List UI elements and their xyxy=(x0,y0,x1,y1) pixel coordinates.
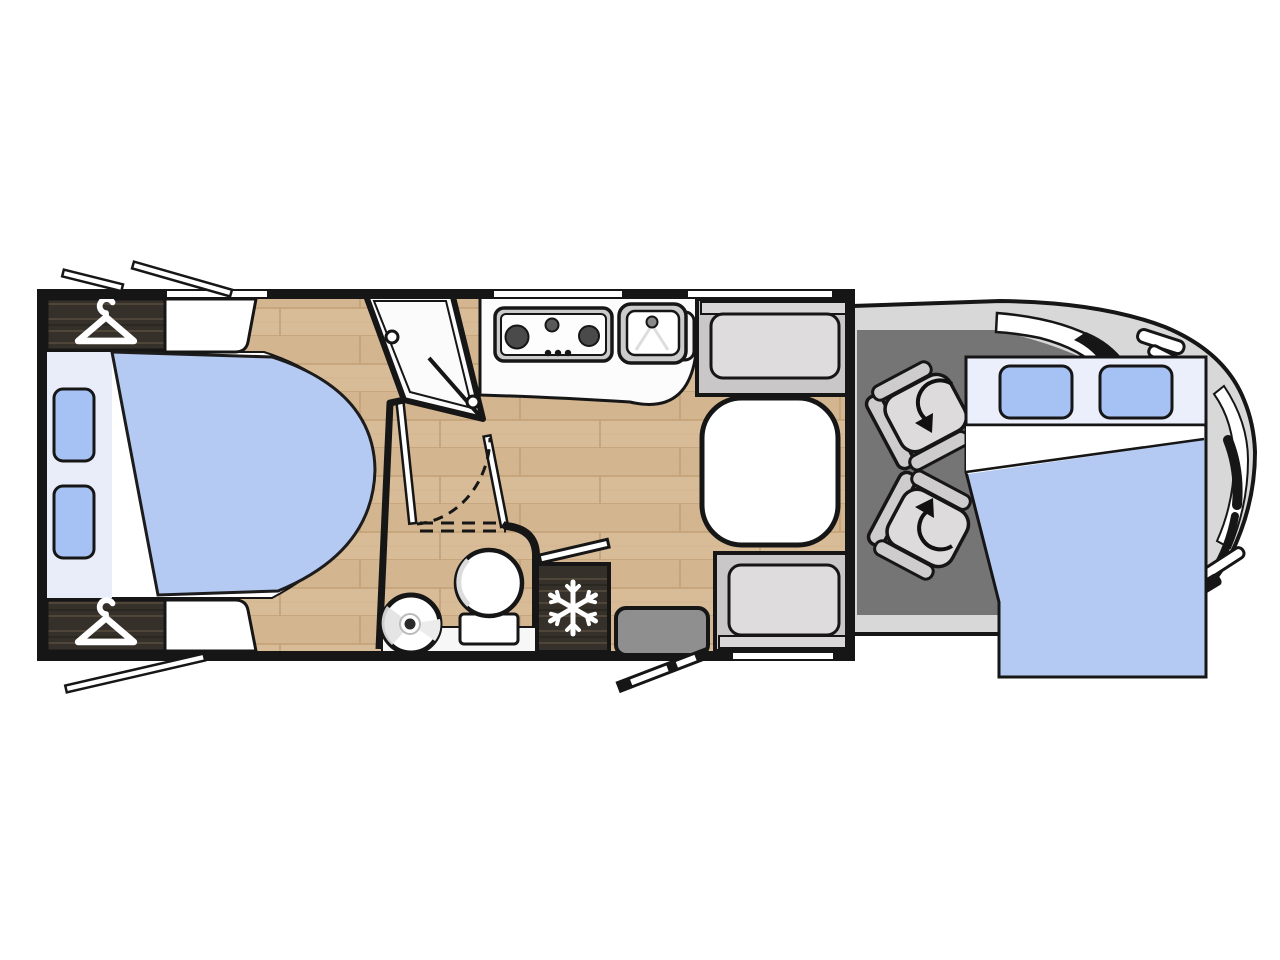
dinette-table xyxy=(702,398,838,545)
bed-pillow-top xyxy=(54,389,94,461)
toilet-cistern xyxy=(460,614,518,644)
hob-knob-icon xyxy=(565,350,571,356)
drop-down-bed-pillow-left xyxy=(1000,366,1072,418)
bench-seat-bottom xyxy=(715,553,853,651)
floorplan-canvas xyxy=(0,0,1280,960)
wall-window-slit xyxy=(733,653,833,659)
fridge-freezer xyxy=(537,564,609,652)
hob-knob-icon xyxy=(545,350,551,356)
bench-seat-top xyxy=(697,299,853,395)
headboard-window-top xyxy=(165,299,256,352)
burner-large-icon xyxy=(506,326,529,349)
habitation-interior xyxy=(47,293,853,656)
wall-window-slit xyxy=(494,291,622,297)
entry-step xyxy=(616,608,708,655)
drop-down-bed-pillow-right xyxy=(1100,366,1172,418)
kitchen-sink xyxy=(619,304,686,363)
burner-small-icon xyxy=(546,319,559,332)
shower-hinge-icon xyxy=(467,396,479,408)
faucet-icon xyxy=(647,317,658,328)
bed-pillow-bottom xyxy=(54,486,94,558)
three-burner-hob xyxy=(495,308,612,361)
hob-knob-icon xyxy=(555,350,561,356)
basin-drain-icon xyxy=(405,619,416,630)
floorplan-page xyxy=(0,0,1280,960)
shower-hinge-icon xyxy=(386,331,398,343)
headboard-window-bottom xyxy=(165,600,256,651)
dinette xyxy=(697,299,853,651)
burner-medium-icon xyxy=(579,326,599,346)
wall-window-slit xyxy=(688,291,832,297)
drop-down-bed xyxy=(966,357,1206,677)
